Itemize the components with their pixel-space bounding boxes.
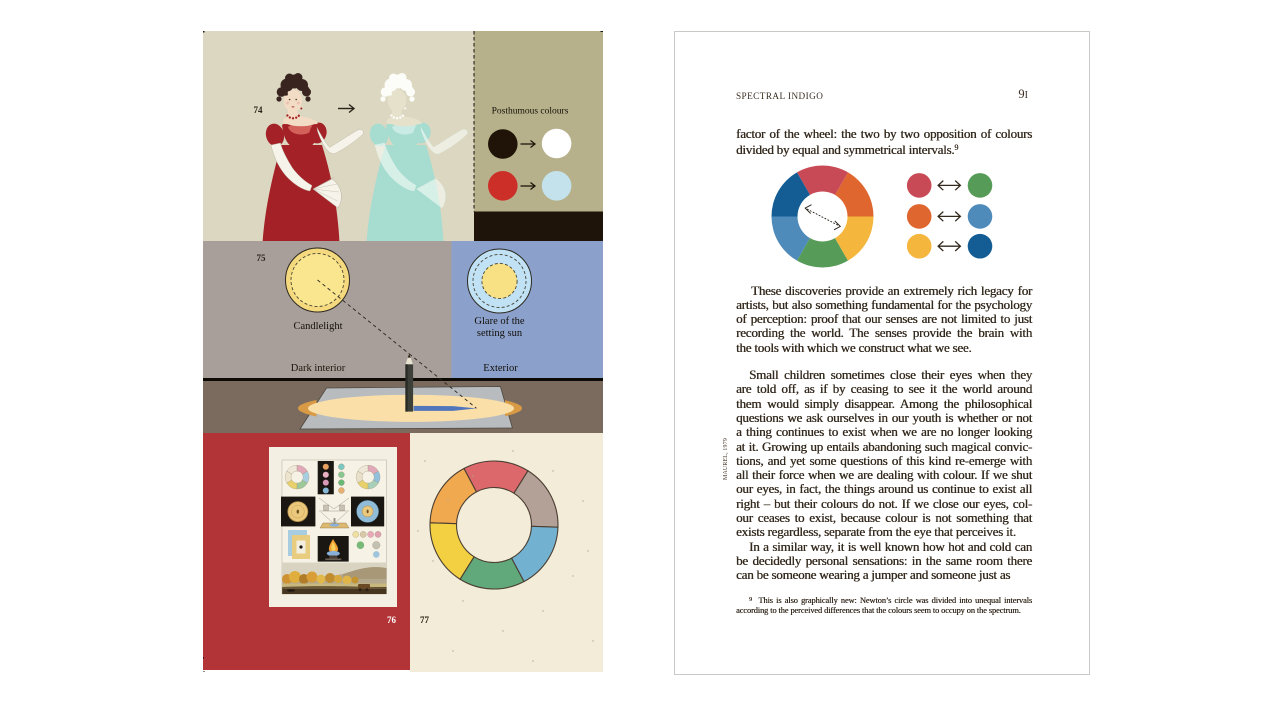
svg-text:74: 74	[254, 105, 264, 115]
svg-text:setting sun: setting sun	[477, 328, 523, 339]
svg-text:Candlelight: Candlelight	[294, 321, 343, 332]
svg-text:Posthumous colours: Posthumous colours	[492, 107, 569, 117]
svg-text:Glare of the: Glare of the	[474, 316, 524, 327]
svg-text:Exterior: Exterior	[483, 363, 518, 374]
svg-text:Dark interior: Dark interior	[291, 363, 346, 374]
svg-text:77: 77	[420, 615, 430, 625]
svg-text:76: 76	[387, 615, 397, 625]
svg-text:75: 75	[257, 253, 267, 263]
